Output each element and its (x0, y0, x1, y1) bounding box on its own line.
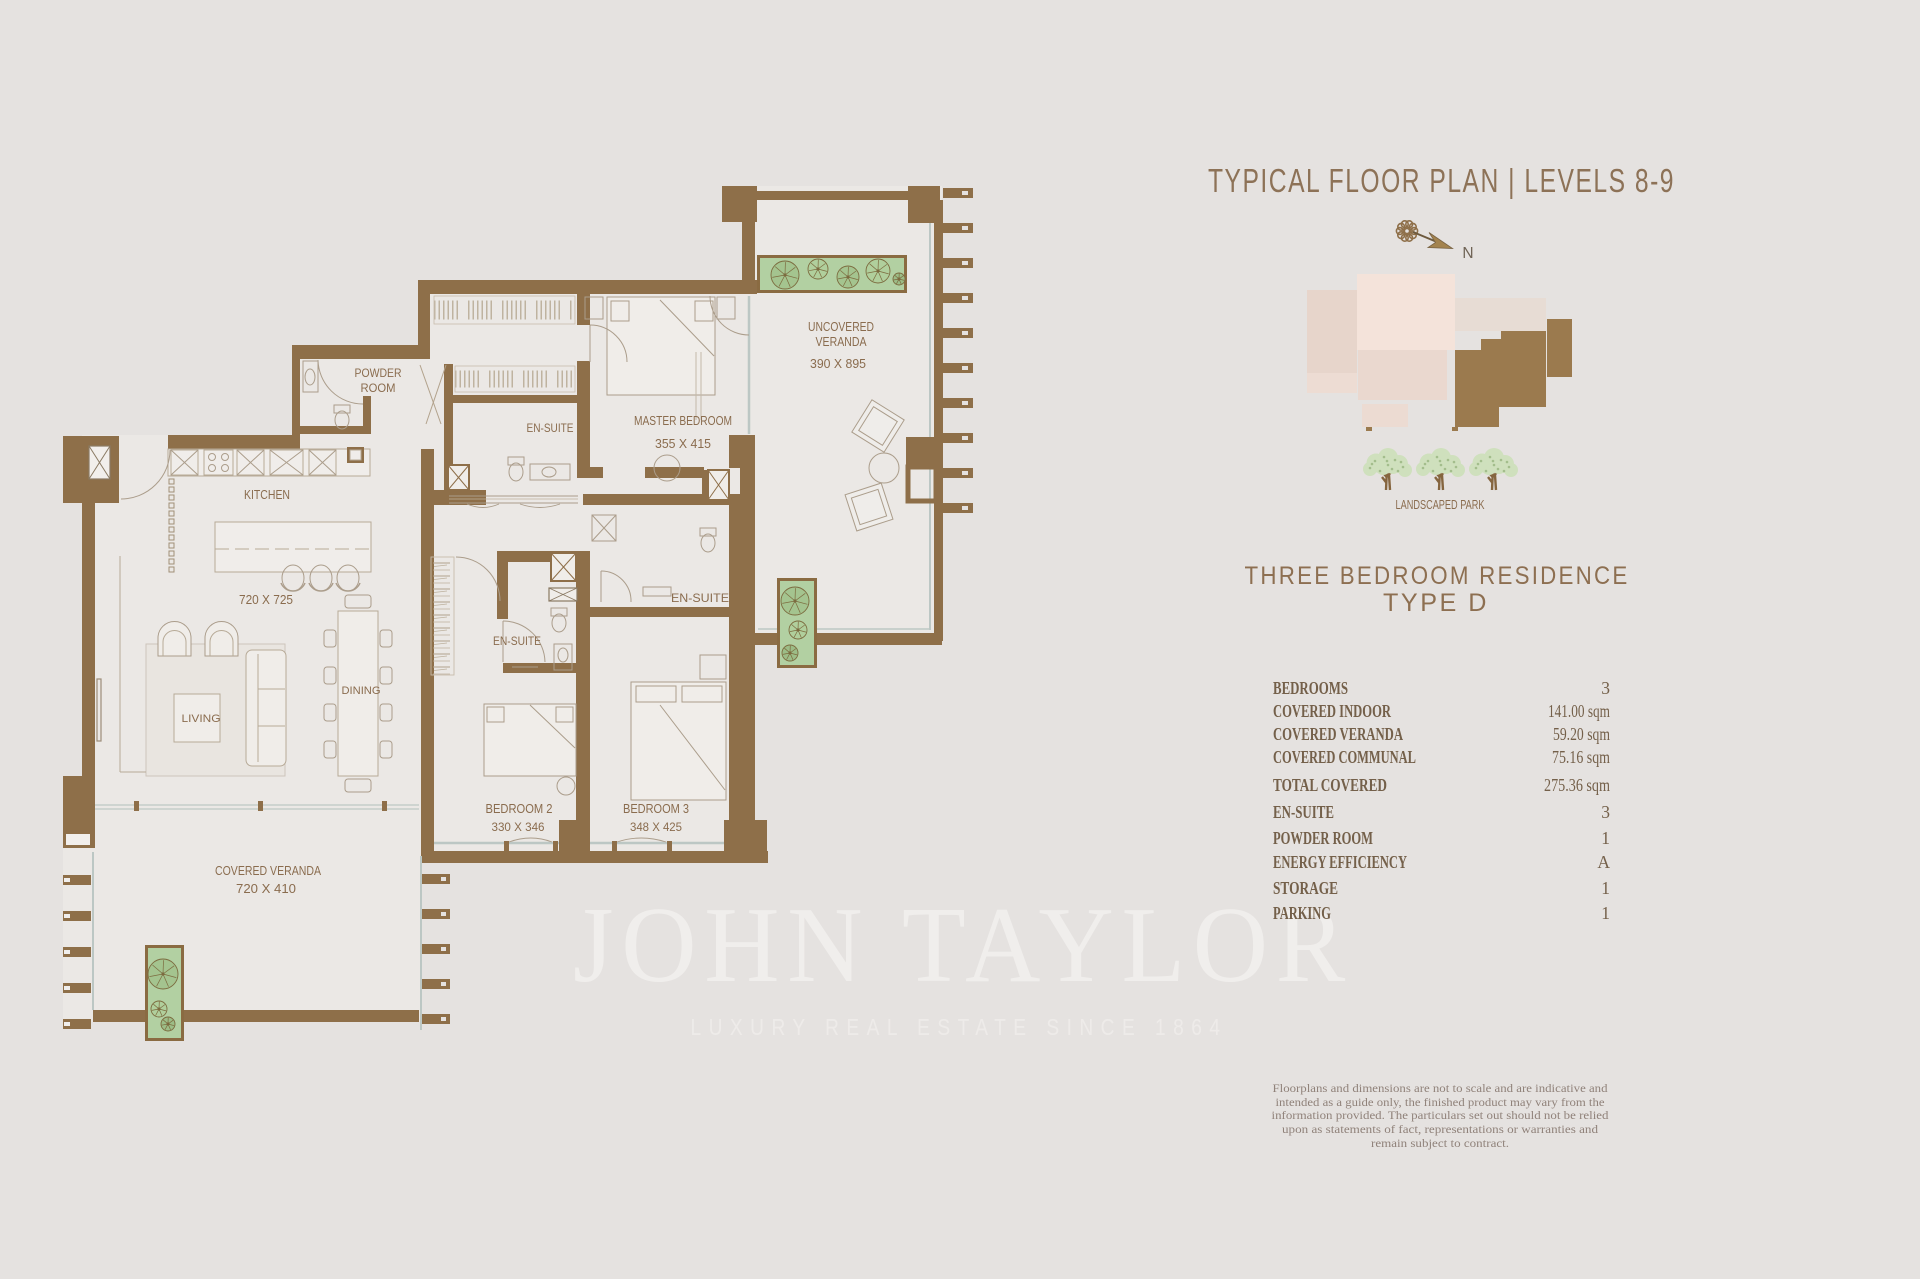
svg-text:ROOM: ROOM (361, 383, 396, 395)
svg-text:BEDROOMS: BEDROOMS (1273, 678, 1348, 698)
svg-text:LUXURY REAL ESTATE SINCE 1864: LUXURY REAL ESTATE SINCE 1864 (691, 1014, 1228, 1040)
svg-text:TYPICAL FLOOR PLAN | LEVELS 8-: TYPICAL FLOOR PLAN | LEVELS 8-9 (1208, 162, 1675, 199)
svg-text:intended as a guide only, the: intended as a guide only, the finished p… (1276, 1096, 1605, 1109)
svg-text:THREE BEDROOM RESIDENCE: THREE BEDROOM RESIDENCE (1245, 562, 1630, 590)
svg-text:BEDROOM 3: BEDROOM 3 (623, 802, 689, 816)
svg-text:POWDER: POWDER (355, 368, 402, 380)
svg-text:3: 3 (1601, 678, 1610, 698)
svg-text:information provided. The part: information provided. The particulars se… (1272, 1109, 1609, 1122)
svg-text:upon as statements of fact, re: upon as statements of fact, representati… (1282, 1123, 1598, 1136)
svg-text:59.20 sqm: 59.20 sqm (1553, 724, 1610, 744)
svg-text:COVERED VERANDA: COVERED VERANDA (215, 863, 321, 878)
svg-text:1: 1 (1601, 828, 1610, 848)
svg-text:KITCHEN: KITCHEN (244, 487, 290, 502)
svg-text:EN-SUITE: EN-SUITE (493, 634, 541, 648)
svg-text:275.36 sqm: 275.36 sqm (1544, 775, 1610, 795)
svg-text:EN-SUITE: EN-SUITE (1273, 802, 1334, 822)
svg-text:BEDROOM 2: BEDROOM 2 (486, 802, 553, 816)
svg-text:STORAGE: STORAGE (1273, 878, 1338, 898)
svg-text:A: A (1597, 852, 1610, 872)
svg-text:EN-SUITE: EN-SUITE (671, 591, 729, 605)
svg-text:UNCOVERED: UNCOVERED (808, 320, 874, 334)
svg-text:N: N (1462, 245, 1473, 262)
svg-text:348 X 425: 348 X 425 (630, 820, 682, 834)
svg-text:COVERED COMMUNAL: COVERED COMMUNAL (1273, 747, 1416, 767)
svg-text:330 X 346: 330 X 346 (492, 820, 545, 834)
svg-text:LIVING: LIVING (182, 713, 221, 725)
svg-text:remain subject to contract.: remain subject to contract. (1371, 1137, 1509, 1150)
svg-text:Floorplans and dimensions are: Floorplans and dimensions are not to sca… (1273, 1082, 1608, 1095)
svg-text:LANDSCAPED PARK: LANDSCAPED PARK (1396, 497, 1485, 512)
svg-text:DINING: DINING (342, 685, 381, 697)
svg-text:355 X 415: 355 X 415 (655, 437, 711, 451)
svg-text:1: 1 (1601, 878, 1610, 898)
svg-text:TYPE D: TYPE D (1383, 589, 1489, 617)
svg-text:TOTAL COVERED: TOTAL COVERED (1273, 775, 1387, 795)
svg-text:ENERGY EFFICIENCY: ENERGY EFFICIENCY (1273, 852, 1407, 872)
svg-text:390 X 895: 390 X 895 (810, 357, 866, 371)
svg-text:720 X 410: 720 X 410 (236, 881, 296, 896)
svg-text:VERANDA: VERANDA (816, 335, 868, 349)
svg-text:JOHN TAYLOR: JOHN TAYLOR (573, 886, 1353, 1005)
svg-text:COVERED VERANDA: COVERED VERANDA (1273, 724, 1403, 744)
svg-text:MASTER BEDROOM: MASTER BEDROOM (634, 413, 732, 428)
svg-text:POWDER ROOM: POWDER ROOM (1273, 828, 1373, 848)
svg-text:75.16 sqm: 75.16 sqm (1552, 747, 1610, 767)
svg-text:PARKING: PARKING (1273, 903, 1331, 923)
svg-text:141.00 sqm: 141.00 sqm (1548, 701, 1610, 721)
svg-text:3: 3 (1601, 802, 1610, 822)
svg-text:1: 1 (1601, 903, 1610, 923)
svg-text:EN-SUITE: EN-SUITE (527, 423, 574, 435)
svg-text:720 X 725: 720 X 725 (239, 592, 293, 607)
svg-text:COVERED INDOOR: COVERED INDOOR (1273, 701, 1391, 721)
